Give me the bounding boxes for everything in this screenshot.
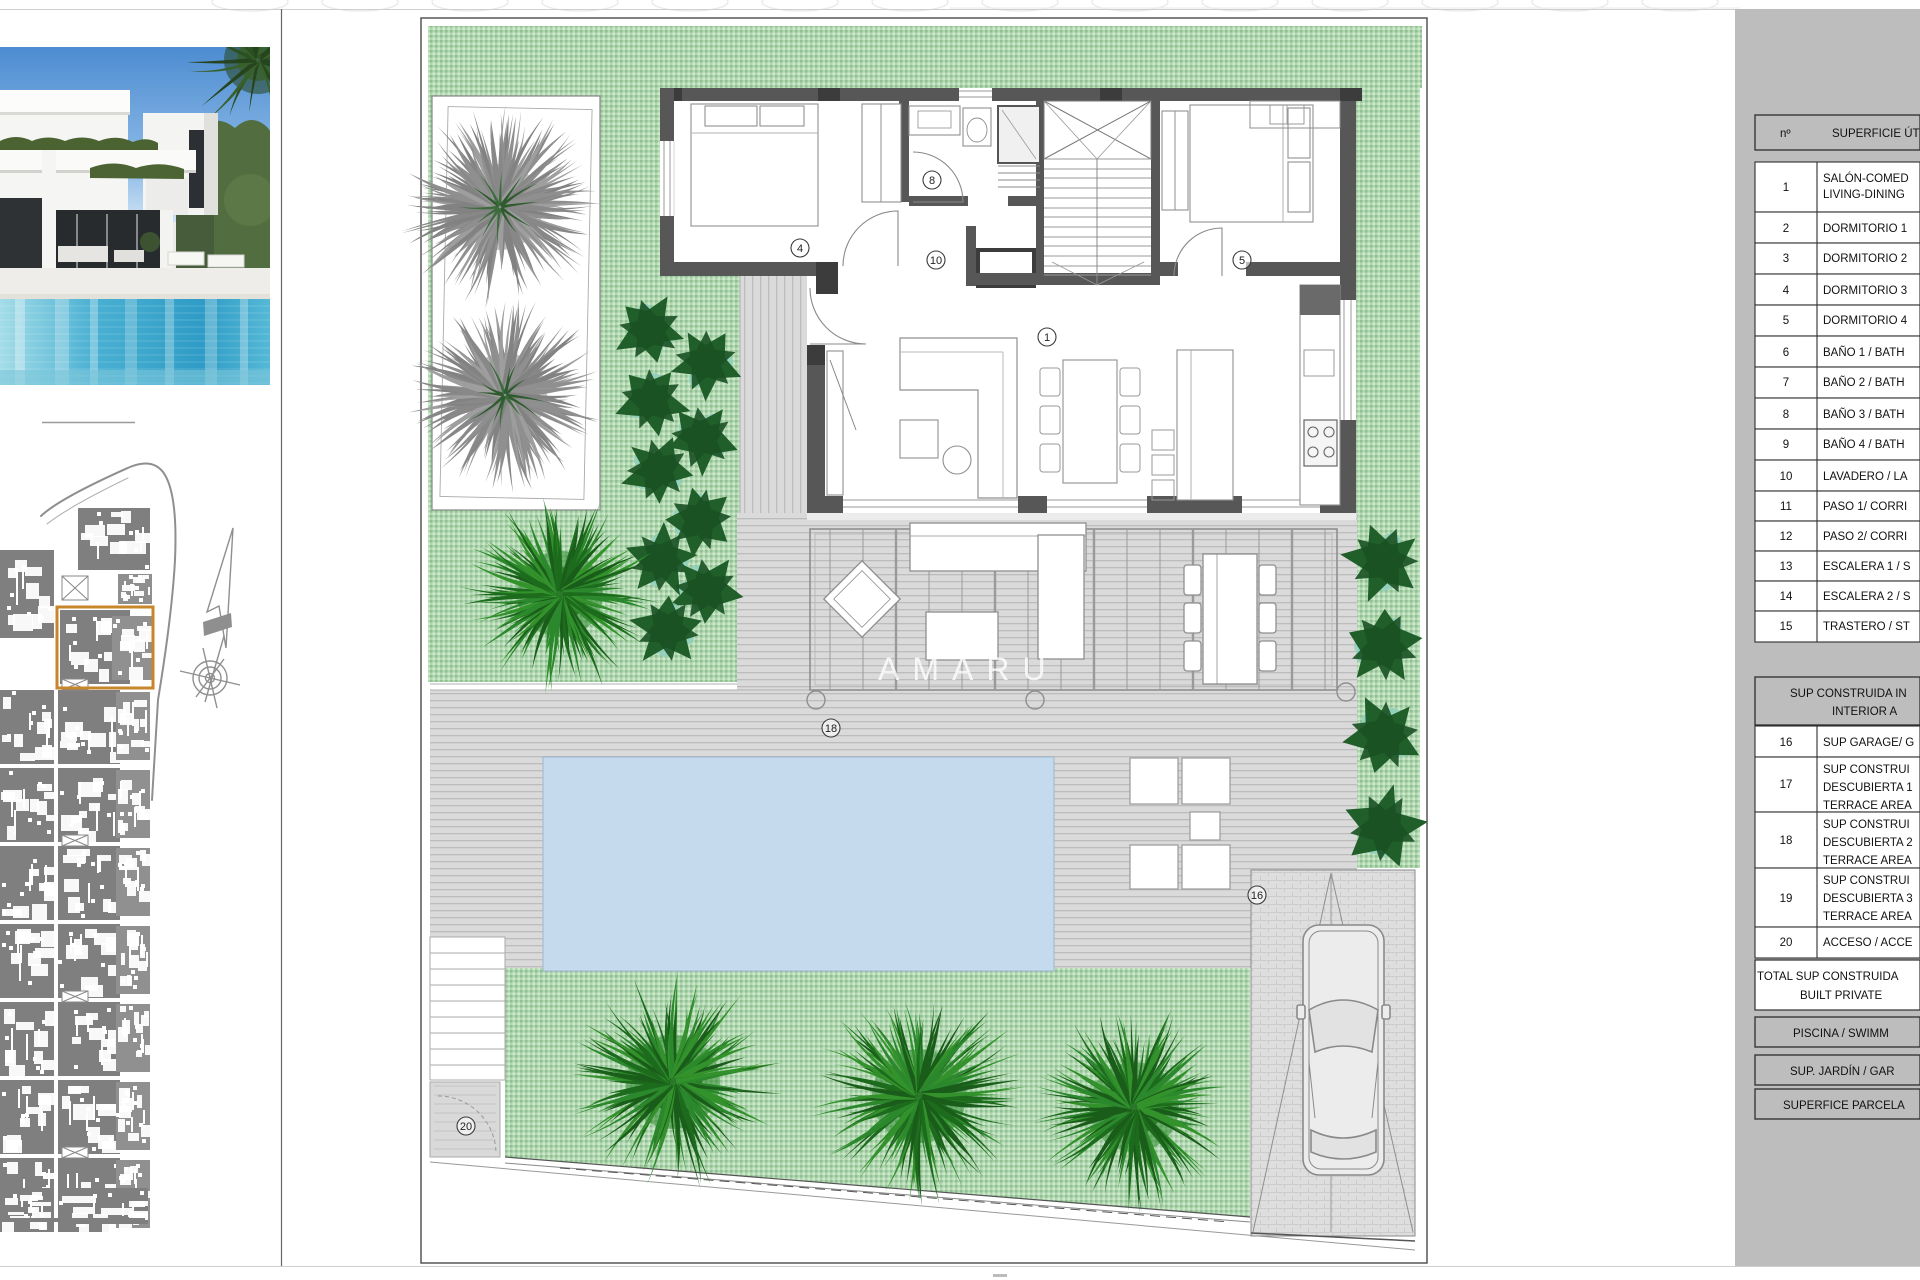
svg-text:12: 12 [1780, 531, 1793, 543]
svg-text:PASO 1/ CORRI: PASO 1/ CORRI [1823, 501, 1907, 513]
svg-text:BAÑO 1 / BATH: BAÑO 1 / BATH [1823, 346, 1905, 359]
svg-text:7: 7 [1783, 377, 1789, 389]
svg-text:TOTAL SUP CONSTRUIDA: TOTAL SUP CONSTRUIDA [1757, 971, 1899, 983]
svg-text:16: 16 [1251, 890, 1263, 902]
svg-text:DESCUBIERTA 2: DESCUBIERTA 2 [1823, 837, 1913, 849]
svg-text:16: 16 [1780, 737, 1793, 749]
svg-text:TRASTERO / ST: TRASTERO / ST [1823, 621, 1910, 633]
svg-text:20: 20 [1780, 937, 1793, 949]
svg-text:DORMITORIO 1: DORMITORIO 1 [1823, 223, 1907, 235]
svg-text:BAÑO 3 / BATH: BAÑO 3 / BATH [1823, 408, 1905, 421]
svg-text:SUPERFICE PARCELA: SUPERFICE PARCELA [1783, 1100, 1905, 1112]
svg-text:ESCALERA 2 / S: ESCALERA 2 / S [1823, 591, 1911, 603]
svg-text:LAVADERO / LA: LAVADERO / LA [1823, 471, 1908, 483]
svg-text:SUP. JARDÍN / GAR: SUP. JARDÍN / GAR [1790, 1065, 1895, 1078]
svg-text:2: 2 [1783, 223, 1789, 235]
svg-text:15: 15 [1780, 621, 1793, 633]
svg-text:TERRACE AREA: TERRACE AREA [1823, 855, 1912, 867]
svg-text:4: 4 [1783, 285, 1790, 297]
svg-text:5: 5 [1239, 255, 1245, 267]
svg-text:DORMITORIO 2: DORMITORIO 2 [1823, 253, 1907, 265]
svg-text:17: 17 [1780, 779, 1793, 791]
svg-text:SUP CONSTRUIDA IN: SUP CONSTRUIDA IN [1790, 688, 1907, 700]
svg-text:5: 5 [1783, 315, 1789, 327]
svg-text:18: 18 [825, 723, 837, 735]
svg-text:18: 18 [1780, 835, 1793, 847]
svg-text:SUP GARAGE/ G: SUP GARAGE/ G [1823, 737, 1914, 749]
svg-text:ACCESO / ACCE: ACCESO / ACCE [1823, 937, 1913, 949]
svg-text:PASO 2/ CORRI: PASO 2/ CORRI [1823, 531, 1907, 543]
svg-text:8: 8 [1783, 409, 1789, 421]
svg-text:nº: nº [1780, 128, 1791, 140]
svg-text:DESCUBIERTA 3: DESCUBIERTA 3 [1823, 893, 1913, 905]
svg-text:3: 3 [1783, 253, 1789, 265]
svg-text:14: 14 [1780, 591, 1793, 603]
svg-text:1: 1 [1783, 182, 1789, 194]
svg-text:20: 20 [460, 1121, 472, 1133]
svg-text:TERRACE AREA: TERRACE AREA [1823, 911, 1912, 923]
svg-text:SUP CONSTRUI: SUP CONSTRUI [1823, 875, 1910, 887]
svg-text:10: 10 [1780, 471, 1793, 483]
svg-text:11: 11 [1780, 501, 1792, 513]
svg-text:10: 10 [930, 255, 942, 267]
svg-text:DORMITORIO 4: DORMITORIO 4 [1823, 315, 1908, 327]
svg-text:PISCINA / SWIMM: PISCINA / SWIMM [1793, 1028, 1889, 1040]
svg-text:SUP CONSTRUI: SUP CONSTRUI [1823, 819, 1910, 831]
svg-text:LIVING-DINING: LIVING-DINING [1823, 189, 1905, 201]
svg-text:6: 6 [1783, 347, 1789, 359]
svg-text:SUP CONSTRUI: SUP CONSTRUI [1823, 764, 1910, 776]
svg-text:SUPERFICIE ÚTI: SUPERFICIE ÚTI [1832, 127, 1920, 140]
svg-text:8: 8 [929, 175, 935, 187]
svg-text:DESCUBIERTA 1: DESCUBIERTA 1 [1823, 782, 1913, 794]
svg-text:1: 1 [1044, 332, 1050, 344]
svg-text:TERRACE AREA: TERRACE AREA [1823, 800, 1912, 812]
svg-text:BAÑO 2 / BATH: BAÑO 2 / BATH [1823, 376, 1905, 389]
svg-text:BAÑO 4 / BATH: BAÑO 4 / BATH [1823, 438, 1905, 451]
svg-text:INTERIOR A: INTERIOR A [1832, 706, 1898, 718]
svg-text:ESCALERA 1 / S: ESCALERA 1 / S [1823, 561, 1911, 573]
svg-text:AMARU: AMARU [878, 651, 1059, 687]
svg-text:BUILT PRIVATE: BUILT PRIVATE [1800, 990, 1883, 1002]
svg-text:4: 4 [797, 243, 803, 255]
svg-text:19: 19 [1780, 893, 1793, 905]
svg-text:9: 9 [1783, 439, 1789, 451]
svg-text:SALÓN-COMED: SALÓN-COMED [1823, 172, 1909, 185]
svg-text:13: 13 [1780, 561, 1793, 573]
svg-text:DORMITORIO 3: DORMITORIO 3 [1823, 285, 1907, 297]
